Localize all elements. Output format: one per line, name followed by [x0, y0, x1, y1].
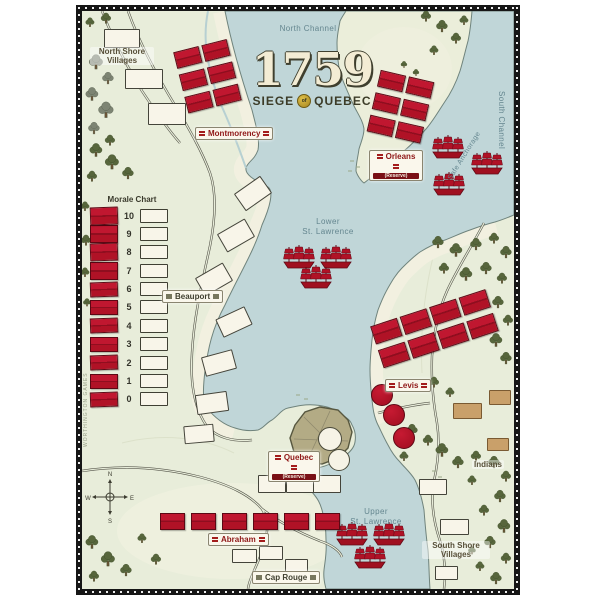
morale-row: 2	[90, 355, 174, 370]
unit-block[interactable]	[253, 513, 278, 530]
compass-n: N	[108, 472, 112, 478]
label-ornament	[263, 131, 269, 136]
game-title: 1759 SIEGE of QUEBEC	[252, 49, 372, 108]
unit-block[interactable]	[179, 68, 208, 91]
label-upper-st-lawrence: Upper St. Lawrence	[344, 507, 408, 527]
french-morale-block[interactable]	[90, 281, 119, 297]
french-morale-block[interactable]	[90, 318, 119, 334]
morale-row: 9	[90, 226, 174, 241]
morale-value: 1	[122, 376, 136, 386]
map-border	[514, 5, 520, 595]
label-ornament	[377, 154, 383, 159]
morale-row: 5	[90, 300, 174, 315]
map-border	[76, 589, 520, 595]
label-ornament	[275, 455, 281, 460]
label-indians: Indians	[472, 460, 504, 469]
french-morale-block[interactable]	[90, 355, 119, 371]
morale-value: 10	[122, 211, 136, 221]
unit-space[interactable]	[125, 69, 163, 89]
unit-block[interactable]	[284, 513, 309, 530]
label-lower-st-lawrence: Lower St. Lawrence	[296, 217, 360, 237]
unit-space[interactable]	[440, 519, 469, 535]
compass-w: W	[85, 496, 91, 502]
label-ornament	[310, 575, 316, 580]
morale-row: 10	[90, 208, 174, 223]
publisher-credit: WORTHINGTON GAMES	[83, 372, 89, 447]
morale-value: 4	[122, 321, 136, 331]
french-morale-block[interactable]	[90, 337, 118, 352]
compass-s: S	[108, 519, 112, 525]
unit-space[interactable]	[183, 424, 214, 445]
unit-block[interactable]	[372, 92, 401, 114]
game-board: N E S W 1759 SIEGE of QUEBEC Morale Char…	[76, 5, 520, 595]
morale-value: 9	[122, 229, 136, 239]
unit-block[interactable]	[160, 513, 185, 530]
unit-space[interactable]	[104, 29, 140, 48]
morale-row: 0	[90, 392, 174, 407]
indian-space[interactable]	[489, 390, 511, 405]
label-ornament	[421, 383, 427, 388]
round-space[interactable]	[328, 449, 350, 471]
morale-chart-title: Morale Chart	[90, 195, 174, 204]
morale-row: 3	[90, 337, 174, 352]
round-unit[interactable]	[383, 404, 405, 426]
french-morale-block[interactable]	[90, 206, 119, 225]
morale-value: 5	[122, 302, 136, 312]
unit-block[interactable]	[400, 99, 429, 121]
unit-block[interactable]	[191, 513, 216, 530]
morale-track-space[interactable]	[140, 227, 168, 241]
morale-value: 6	[122, 284, 136, 294]
title-year: 1759	[252, 49, 372, 92]
unit-block[interactable]	[222, 513, 247, 530]
morale-value: 2	[122, 358, 136, 368]
french-morale-block[interactable]	[90, 243, 119, 262]
morale-track-space[interactable]	[140, 374, 168, 388]
unit-group-abraham	[160, 513, 340, 530]
french-morale-block[interactable]	[90, 374, 118, 389]
label-ornament	[213, 294, 219, 299]
map-border	[76, 5, 520, 11]
unit-space[interactable]	[419, 479, 447, 495]
label-ornament	[199, 131, 205, 136]
morale-track-space[interactable]	[140, 337, 168, 351]
label-south-channel: South Channel	[496, 91, 506, 149]
morale-value: 3	[122, 339, 136, 349]
label-levis: Levis	[385, 379, 431, 392]
label-ornament	[291, 465, 297, 470]
label-abraham: Abraham	[208, 533, 269, 546]
unit-space[interactable]	[435, 566, 458, 580]
unit-space[interactable]	[259, 546, 283, 560]
morale-row: 1	[90, 374, 174, 389]
morale-track-space[interactable]	[140, 319, 168, 333]
label-ornament	[256, 575, 262, 580]
morale-track-space[interactable]	[140, 356, 168, 370]
label-south-shore-villages: South Shore Villages	[422, 541, 490, 559]
unit-space[interactable]	[232, 549, 257, 563]
french-morale-block[interactable]	[90, 225, 118, 243]
morale-value: 7	[122, 266, 136, 276]
morale-value: 8	[122, 247, 136, 257]
label-ornament	[166, 294, 172, 299]
morale-track-space[interactable]	[140, 209, 168, 223]
french-morale-block[interactable]	[90, 262, 118, 280]
indian-space[interactable]	[487, 438, 509, 451]
round-unit[interactable]	[393, 427, 415, 449]
label-ornament	[393, 164, 399, 169]
morale-track-space[interactable]	[140, 392, 168, 406]
title-word: SIEGE	[252, 94, 294, 108]
label-orleans: Orleans (Reserve)	[369, 150, 423, 181]
unit-block[interactable]	[315, 513, 340, 530]
label-quebec: Quebec (Reserve)	[268, 451, 320, 482]
morale-value: 0	[122, 394, 136, 404]
map-inner: N E S W 1759 SIEGE of QUEBEC Morale Char…	[82, 11, 514, 589]
label-ornament	[389, 383, 395, 388]
morale-row: 8	[90, 245, 174, 260]
morale-track-space[interactable]	[140, 264, 168, 278]
label-north-shore-villages: North Shore Villages	[90, 47, 154, 65]
unit-block[interactable]	[207, 61, 236, 84]
label-montmorency: Montmorency	[195, 127, 273, 140]
morale-chart-rows: 10 9 8 7 6 5 4 3 2 1 0	[90, 208, 174, 407]
french-morale-block[interactable]	[90, 391, 119, 407]
unit-space[interactable]	[148, 103, 186, 125]
label-ornament	[212, 537, 218, 542]
indian-space[interactable]	[453, 403, 482, 419]
title-word: QUEBEC	[314, 94, 371, 108]
label-north-channel: North Channel	[268, 24, 348, 34]
french-morale-block[interactable]	[90, 300, 118, 315]
label-beauport: Beauport	[162, 290, 223, 303]
label-cap-rouge: Cap Rouge	[252, 571, 320, 584]
label-ornament	[259, 537, 265, 542]
title-ornament-badge: of	[297, 94, 311, 108]
morale-row: 7	[90, 263, 174, 278]
map-border	[76, 5, 82, 595]
morale-track-space[interactable]	[140, 245, 168, 259]
round-space[interactable]	[318, 427, 342, 451]
compass-e: E	[130, 496, 134, 502]
morale-row: 4	[90, 318, 174, 333]
